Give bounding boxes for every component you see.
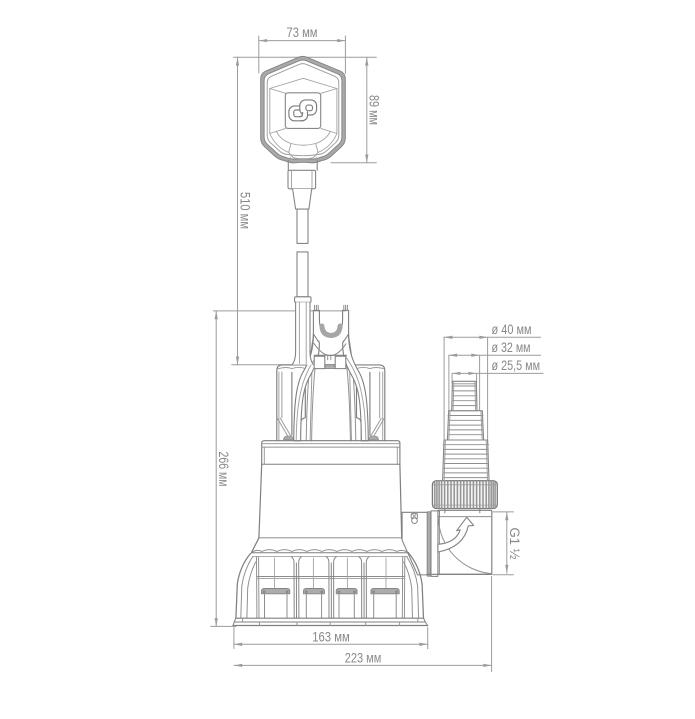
svg-text:89 мм: 89 мм <box>367 95 382 125</box>
svg-text:163 мм: 163 мм <box>312 630 350 645</box>
svg-text:266 мм: 266 мм <box>216 452 231 487</box>
svg-text:G1 ½: G1 ½ <box>507 528 522 560</box>
svg-text:ø 40 мм: ø 40 мм <box>492 322 532 337</box>
svg-text:510 мм: 510 мм <box>238 192 253 229</box>
svg-text:ø 32 мм: ø 32 мм <box>492 340 531 355</box>
svg-text:ø 25,5 мм: ø 25,5 мм <box>492 358 541 373</box>
svg-text:223 мм: 223 мм <box>345 651 382 666</box>
svg-text:73 мм: 73 мм <box>287 25 318 40</box>
